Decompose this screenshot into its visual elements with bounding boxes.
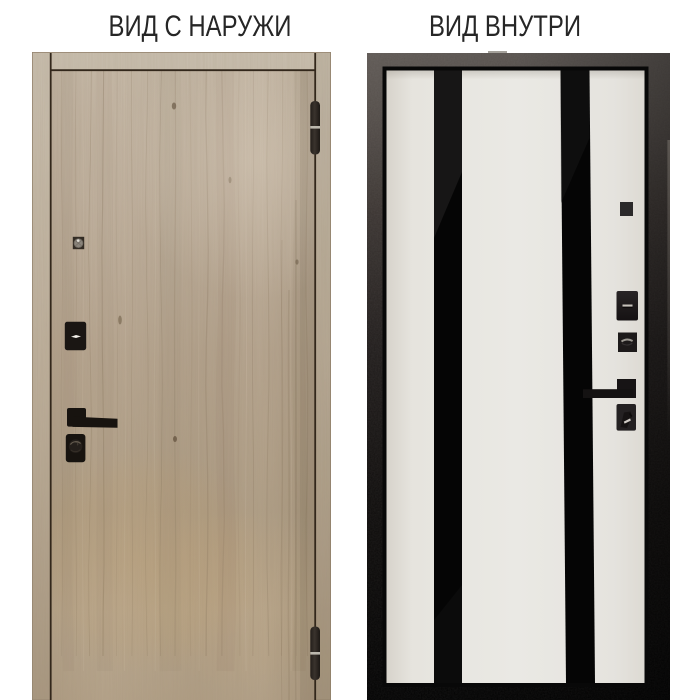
- svg-text:ВИД С НАРУЖИ: ВИД С НАРУЖИ: [109, 10, 292, 43]
- svg-text:ВИД ВНУТРИ: ВИД ВНУТРИ: [429, 10, 581, 43]
